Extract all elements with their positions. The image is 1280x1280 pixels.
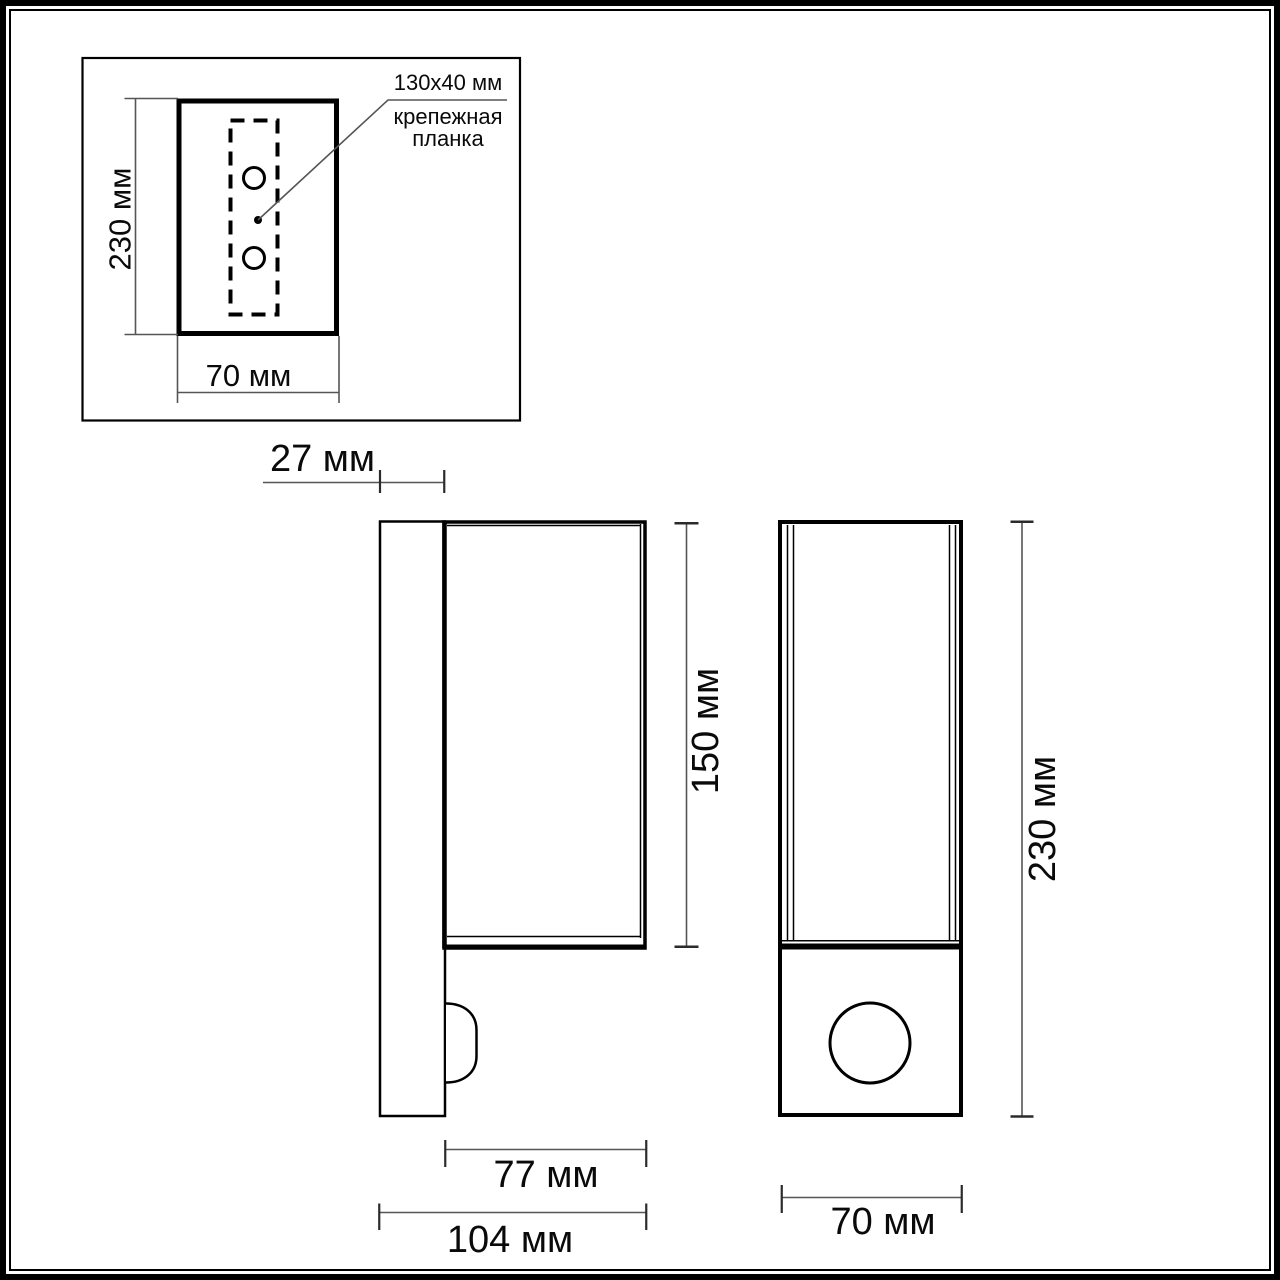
side-total-depth-dimension-label: 104 мм xyxy=(430,1220,590,1260)
mounting-plate-name-label: крепежная планка xyxy=(383,106,513,150)
drawing-linework xyxy=(0,0,1280,1280)
front-view xyxy=(778,522,1034,1213)
mounting-plate-dashed-outline xyxy=(231,121,278,315)
wall-plate-outline xyxy=(380,522,445,1117)
side-body-height-dimension-label: 150 мм xyxy=(686,656,726,806)
side-body-depth-dimension-label: 77 мм xyxy=(466,1155,626,1195)
side-plate-depth-dimension-label: 27 мм xyxy=(242,439,403,477)
front-height-dimension-label: 230 мм xyxy=(1023,744,1063,894)
side-view xyxy=(263,470,699,1230)
front-sensor-circle xyxy=(830,1003,910,1083)
side-body-outline xyxy=(444,522,645,948)
front-width-dimension-label: 70 мм xyxy=(803,1202,963,1242)
inset-height-dimension-label: 230 мм xyxy=(104,159,138,280)
front-outline xyxy=(780,522,961,1115)
mounting-plate-name-line1: крепежная xyxy=(383,106,513,128)
inset-width-dimension-label: 70 мм xyxy=(188,359,309,392)
mounting-plate-name-line2: планка xyxy=(383,128,513,150)
screw-hole-bottom-icon xyxy=(244,248,265,269)
mounting-plate-size-label: 130x40 мм xyxy=(383,72,513,98)
technical-drawing-page: 230 мм 70 мм 130x40 мм крепежная планка … xyxy=(0,0,1280,1280)
sensor-bump-outline xyxy=(446,1004,477,1083)
screw-hole-top-icon xyxy=(244,168,265,189)
